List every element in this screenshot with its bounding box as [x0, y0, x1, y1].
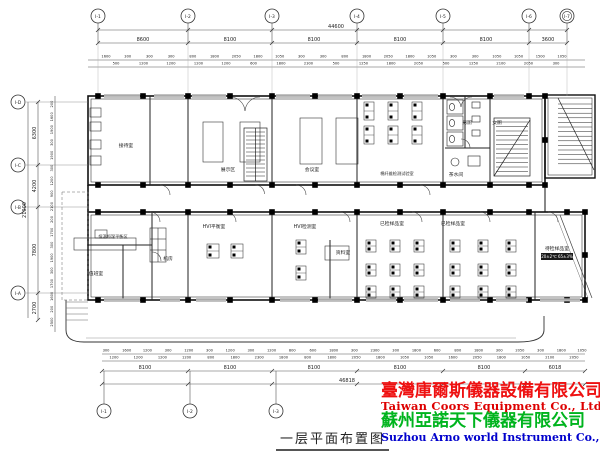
room-label: 待检样品室 [545, 245, 569, 252]
dim-top-small: 600 [250, 62, 258, 66]
workbench [480, 248, 483, 251]
workbench [392, 242, 395, 245]
workbench [508, 272, 511, 275]
interior-walls [88, 96, 535, 300]
column [95, 297, 101, 303]
dim-bottom-small: 1800 [327, 356, 337, 360]
dim-top-small: 300 [146, 55, 154, 59]
dim-top-small: 1050 [492, 55, 502, 59]
dim-top-small: 2050 [414, 62, 424, 66]
building-outline [88, 95, 595, 300]
workbench [416, 242, 419, 245]
dim-bottom-small: 1200 [143, 349, 153, 353]
dim-bottom-small: 300 [103, 349, 111, 353]
dim-top-small: 1600 [101, 55, 111, 59]
axis-label-top: I-2 [185, 14, 191, 20]
column [582, 209, 588, 215]
dim-top-small: 1200 [166, 62, 176, 66]
room-label: 已检样品室 [380, 220, 404, 227]
dim-left-small: 2100 [50, 201, 54, 211]
column [269, 209, 275, 215]
column [354, 93, 360, 99]
workbench [390, 140, 393, 143]
column [269, 297, 275, 303]
dim-top-small: 1200 [221, 62, 231, 66]
column [269, 182, 275, 188]
dim-top-small: 1800 [386, 62, 396, 66]
dim-bottom-small: 1600 [448, 356, 458, 360]
workbench [392, 294, 395, 297]
dim-bottom-small: 300 [537, 349, 545, 353]
axis-label-left: I-D [15, 100, 22, 106]
dim-top-small: 300 [320, 55, 328, 59]
column [542, 93, 548, 99]
dim-left-small: 2500 [50, 317, 54, 327]
dim-left-small: 1700 [50, 227, 54, 237]
dim-bottom-segment: 8100 [478, 365, 491, 371]
dim-top-small: 1050 [275, 55, 285, 59]
dim-top-small: 1800 [276, 62, 286, 66]
column [354, 209, 360, 215]
dim-left-small: 1600 [50, 291, 54, 301]
column [542, 137, 548, 143]
workbench [452, 242, 455, 245]
column [312, 297, 318, 303]
workbench [368, 242, 371, 245]
dim-bottom-small: 1200 [267, 349, 277, 353]
dim-top-small: 2050 [384, 55, 394, 59]
dim-top-small: 500 [443, 62, 451, 66]
column [185, 297, 191, 303]
axis-label-left: I-A [15, 291, 21, 297]
dim-bottom-overall: 46818 [339, 378, 355, 384]
dim-top-small: 500 [113, 62, 121, 66]
dim-bottom-small: 1200 [109, 356, 119, 360]
dim-top-small: 1200 [139, 62, 149, 66]
room-label: HVI检测室 [294, 223, 317, 230]
axis-label-top: I-5 [440, 14, 446, 20]
workbench [298, 250, 301, 253]
dim-left-small: 900 [50, 190, 54, 198]
workbench [392, 272, 395, 275]
dim-left-overall: 21000 [22, 202, 28, 218]
column [397, 93, 403, 99]
dim-bottom-small: 800 [207, 356, 215, 360]
workbench [298, 242, 301, 245]
dim-bottom-small: 2300 [370, 349, 380, 353]
workbench [298, 268, 301, 271]
spec-box-label: 20±2℃ 65±3% [541, 254, 573, 259]
dim-bottom-small: 1050 [424, 356, 434, 360]
dim-bottom-small: 600 [434, 349, 442, 353]
dim-top-small: 1800 [210, 55, 220, 59]
dim-top-small: 1050 [427, 55, 437, 59]
dim-bottom-small: 2050 [352, 356, 362, 360]
column [582, 297, 588, 303]
dim-top-small: 300 [168, 55, 176, 59]
dimension-lines [28, 30, 585, 384]
dim-top-small: 300 [124, 55, 132, 59]
dim-bottom-small: 1200 [158, 356, 168, 360]
column [95, 209, 101, 215]
dim-bottom-small: 300 [496, 349, 504, 353]
dim-top-small: 1050 [514, 55, 524, 59]
dim-bottom-small: 1050 [400, 356, 410, 360]
dim-left-small: 1900 [50, 253, 54, 263]
column [95, 93, 101, 99]
workbench [298, 276, 301, 279]
column [542, 182, 548, 188]
dim-bottom-small: 800 [289, 349, 297, 353]
dim-top-small: 2300 [304, 62, 314, 66]
dim-top-segment: 3600 [542, 37, 555, 43]
column [582, 252, 588, 258]
axis-label-left: I-C [15, 163, 21, 169]
dim-top-small: 1050 [557, 55, 567, 59]
company-name-zh-suzhou: 蘇州亞諾天下儀器有限公司 [381, 413, 585, 430]
workbench [392, 288, 395, 291]
dim-bottom-small: 2050 [569, 356, 579, 360]
column [140, 93, 146, 99]
column [227, 297, 233, 303]
workbench [452, 272, 455, 275]
room-label: HVI平衡室 [203, 223, 226, 230]
dim-top-small: 1250 [359, 62, 369, 66]
dim-bottom-segment: 8100 [224, 365, 237, 371]
column [227, 182, 233, 188]
dim-top-segment: 8100 [480, 37, 493, 43]
workbench [416, 272, 419, 275]
dim-top-segment: 8600 [137, 37, 150, 43]
dim-bottom-small: 600 [310, 349, 318, 353]
workbench [480, 288, 483, 291]
dim-top-small: 1500 [536, 55, 546, 59]
dim-bottom-small: 300 [351, 349, 359, 353]
dim-left-segment: 4200 [32, 180, 38, 193]
dim-top-small: 300 [298, 55, 306, 59]
workbench [416, 294, 419, 297]
room-label: 值班室 [89, 270, 104, 277]
column [185, 182, 191, 188]
dim-top-segment: 8100 [224, 37, 237, 43]
dim-top-small: 1800 [362, 55, 372, 59]
dim-bottom-small: 1200 [226, 349, 236, 353]
column [95, 182, 101, 188]
workbench [508, 242, 511, 245]
room-label: 女厕 [492, 119, 502, 126]
axis-label-top: I-1 [95, 14, 101, 20]
dim-bottom-segment: 8100 [394, 365, 407, 371]
column [440, 93, 446, 99]
workbench [368, 248, 371, 251]
dim-bottom-small: 800 [304, 356, 312, 360]
dim-left-small: 300 [50, 164, 54, 172]
stairs [244, 98, 594, 181]
workbench [414, 140, 417, 143]
dim-left-small: 300 [50, 138, 54, 146]
column [185, 209, 191, 215]
dim-left-small: 1600 [50, 112, 54, 122]
workbench [414, 128, 417, 131]
dim-top-small: 1800 [405, 55, 415, 59]
dim-bottom-small: 1800 [230, 356, 240, 360]
workbench [368, 288, 371, 291]
workbench [366, 140, 369, 143]
column [140, 209, 146, 215]
toilet-fixtures [447, 100, 480, 166]
dim-bottom-small: 300 [392, 349, 400, 353]
dim-left-small: 200 [50, 100, 54, 108]
dim-left-small: 200 [50, 215, 54, 223]
dim-bottom-small: 1800 [474, 349, 484, 353]
column [312, 209, 318, 215]
axis-label-bottom: I-2 [187, 409, 193, 415]
axis-label-left: I-B [15, 205, 21, 211]
workbench [508, 288, 511, 291]
dim-bottom-small: 1800 [497, 356, 507, 360]
workbench [452, 248, 455, 251]
dim-bottom-small: 1800 [412, 349, 422, 353]
room-label: 已检样品室 [441, 220, 465, 227]
dim-bottom-small: 1800 [329, 349, 339, 353]
room-label: 接待室 [119, 142, 134, 149]
column [564, 209, 570, 215]
dim-left-small: 300 [50, 241, 54, 249]
dim-bottom-small: 1200 [184, 349, 194, 353]
workbench [233, 246, 236, 249]
dim-bottom-small: 1050 [577, 349, 587, 353]
room-label: 展示区 [221, 167, 236, 173]
dim-bottom-segment: 8100 [308, 365, 321, 371]
workbench [452, 288, 455, 291]
dim-top-small: 1250 [469, 62, 479, 66]
workbench [368, 272, 371, 275]
column [354, 182, 360, 188]
dim-bottom-small: 300 [165, 349, 173, 353]
dim-top-small: 300 [553, 62, 561, 66]
workbench [414, 104, 417, 107]
dim-left-segment: 7800 [32, 244, 38, 257]
dim-top-small: 2050 [524, 62, 534, 66]
workbench [416, 266, 419, 269]
dim-bottom-small: 300 [247, 349, 255, 353]
room-label: 会议室 [305, 166, 320, 173]
room-label: 资料室 [336, 249, 351, 256]
dim-bottom-small: 2300 [255, 356, 265, 360]
dim-top-small: 800 [341, 55, 349, 59]
workbench [452, 294, 455, 297]
column [312, 93, 318, 99]
axis-label-top: I-4 [354, 14, 360, 20]
workbench [480, 294, 483, 297]
column [227, 209, 233, 215]
column [440, 182, 446, 188]
column [185, 93, 191, 99]
dim-bottom-small: 2100 [545, 356, 555, 360]
column [354, 297, 360, 303]
dim-bottom-segment: 8100 [139, 365, 152, 371]
column [440, 209, 446, 215]
workbench [390, 104, 393, 107]
dim-bottom-small: 1800 [279, 356, 289, 360]
company-name-en-suzhou: Suzhou Arno world Instrument Co., Ltd. [381, 432, 600, 443]
dim-top-segment: 8100 [394, 37, 407, 43]
workbench [508, 266, 511, 269]
dim-left-small: 300 [50, 267, 54, 275]
dim-left-small: 200 [50, 305, 54, 313]
dim-bottom-small: 1800 [376, 356, 386, 360]
room-label: 机房 [163, 255, 173, 262]
column [487, 93, 493, 99]
column [312, 182, 318, 188]
workbench [480, 242, 483, 245]
dim-left-small: 1900 [50, 150, 54, 160]
workbench [366, 104, 369, 107]
dim-bottom-small: 1050 [521, 356, 531, 360]
axis-label-top: I-3 [269, 14, 275, 20]
dim-top-small: 1200 [194, 62, 204, 66]
room-label: 男厕 [462, 120, 472, 126]
workbench [366, 128, 369, 131]
column [440, 297, 446, 303]
dim-left-segment: 6300 [32, 127, 38, 140]
dim-top-small: 800 [189, 55, 197, 59]
workbench [390, 116, 393, 119]
dim-bottom-small: 1800 [557, 349, 567, 353]
workbench [392, 248, 395, 251]
generated-annotations: I-1I-2I-3I-4I-5I-6I-7I-1I-2I-3I-DI-CI-BI… [11, 9, 592, 418]
axis-label-top: I-6 [526, 14, 532, 20]
workbench [508, 248, 511, 251]
company-name-zh-taiwan: 臺灣庫爾斯儀器設備有限公司 [381, 383, 600, 400]
workbench [508, 294, 511, 297]
dim-left-small: 1900 [50, 124, 54, 134]
drawing-title: 一层平面布置图 [276, 428, 389, 451]
dim-top-small: 300 [450, 55, 458, 59]
column [487, 209, 493, 215]
dim-bottom-small: 2050 [473, 356, 483, 360]
room-label: 棉纤维检测试验室 [380, 170, 414, 177]
axis-label-bottom: I-1 [101, 409, 107, 415]
column [227, 93, 233, 99]
dim-left-segment: 2700 [32, 302, 38, 315]
dim-top-small: 2100 [496, 62, 506, 66]
axis-label-bottom: I-3 [273, 409, 279, 415]
workbench [368, 266, 371, 269]
column [397, 182, 403, 188]
dim-bottom-small: 1600 [122, 349, 132, 353]
axis-label-top: I-7 [564, 14, 570, 20]
room-label: 恒温恒湿平衡区 [98, 233, 127, 240]
workbench [390, 128, 393, 131]
workbench [414, 116, 417, 119]
column [140, 297, 146, 303]
workbench [452, 266, 455, 269]
dim-left-small: 1200 [50, 176, 54, 186]
column [397, 209, 403, 215]
column [526, 209, 532, 215]
dim-bottom-small: 1200 [134, 356, 144, 360]
dim-top-segment: 8100 [308, 37, 321, 43]
dim-top-small: 500 [333, 62, 341, 66]
column [269, 93, 275, 99]
workbench [480, 272, 483, 275]
dim-top-overall: 44600 [328, 24, 344, 30]
workbench [392, 266, 395, 269]
dim-bottom-small: 1200 [182, 356, 192, 360]
column [526, 93, 532, 99]
dim-bottom-small: 2050 [515, 349, 525, 353]
column [526, 182, 532, 188]
column [487, 182, 493, 188]
dim-left-small: 1700 [50, 278, 54, 288]
workbench [209, 254, 212, 257]
dim-top-small: 1800 [253, 55, 263, 59]
dim-bottom-segment: 6018 [549, 365, 562, 371]
workbench [209, 246, 212, 249]
dim-bottom-small: 300 [206, 349, 214, 353]
column [140, 182, 146, 188]
workbench [480, 266, 483, 269]
dim-top-small: 2050 [232, 55, 242, 59]
dim-bottom-small: 800 [454, 349, 462, 353]
workbench [416, 288, 419, 291]
room-label: 茶水间 [449, 171, 464, 178]
workbench [233, 254, 236, 257]
workbench [368, 294, 371, 297]
floor-plan-sheet: I-1I-2I-3I-4I-5I-6I-7I-1I-2I-3I-DI-CI-BI… [0, 0, 600, 456]
workbench [416, 248, 419, 251]
dim-top-small: 300 [472, 55, 480, 59]
workbench [366, 116, 369, 119]
